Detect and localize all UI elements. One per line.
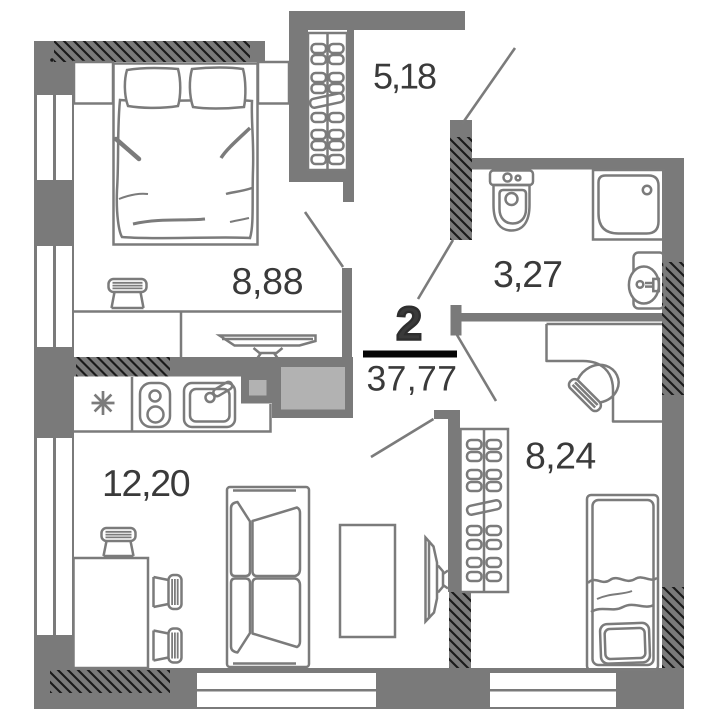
svg-text:8,88: 8,88	[231, 260, 303, 302]
svg-text:37,77: 37,77	[366, 359, 457, 399]
svg-text:2: 2	[396, 297, 422, 350]
svg-text:12,20: 12,20	[102, 462, 190, 504]
svg-text:8,24: 8,24	[525, 435, 596, 477]
svg-text:3,27: 3,27	[493, 253, 562, 295]
svg-text:5,18: 5,18	[373, 56, 436, 97]
